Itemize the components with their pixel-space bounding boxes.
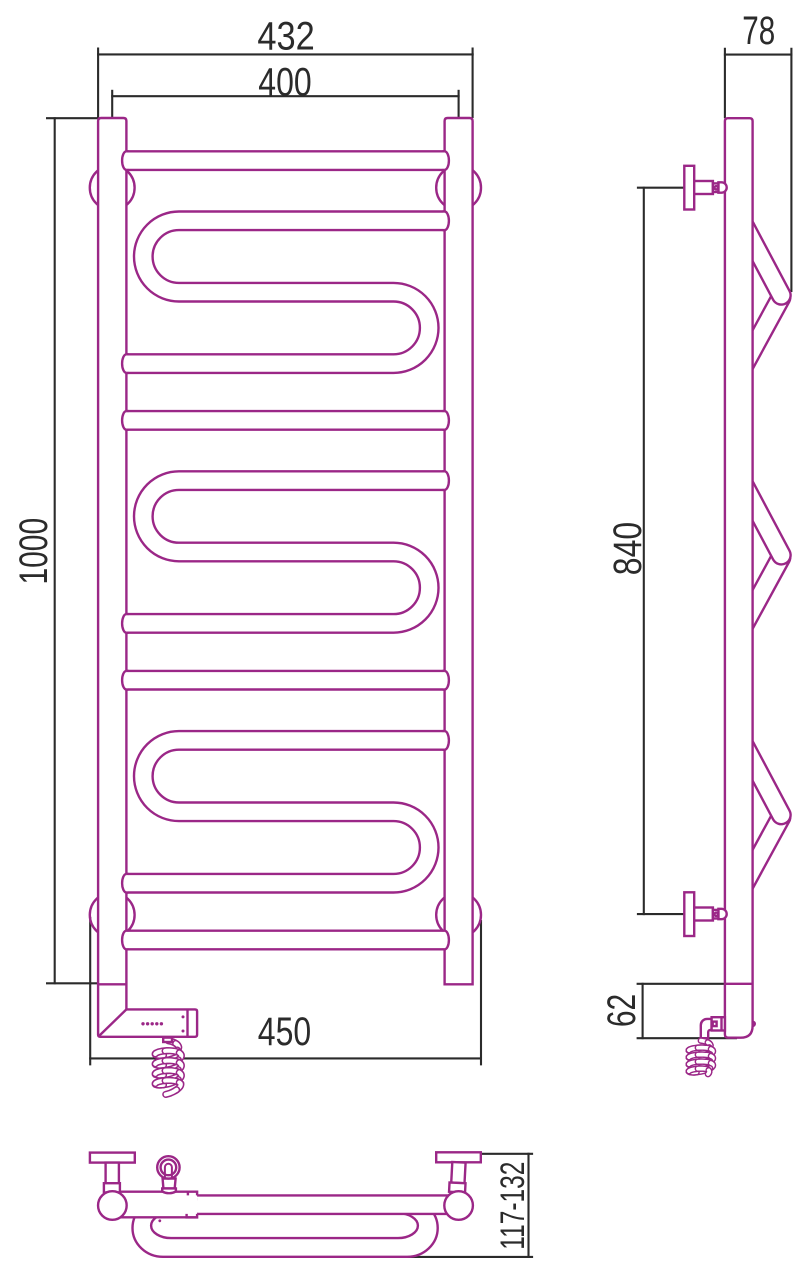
svg-text:840: 840	[605, 522, 650, 575]
svg-text:400: 400	[258, 59, 311, 104]
svg-text:78: 78	[742, 9, 775, 53]
svg-text:62: 62	[600, 994, 644, 1027]
svg-text:117-132: 117-132	[494, 1162, 532, 1250]
svg-text:432: 432	[257, 13, 314, 58]
svg-text:1000: 1000	[12, 518, 56, 585]
svg-text:450: 450	[258, 1009, 311, 1054]
